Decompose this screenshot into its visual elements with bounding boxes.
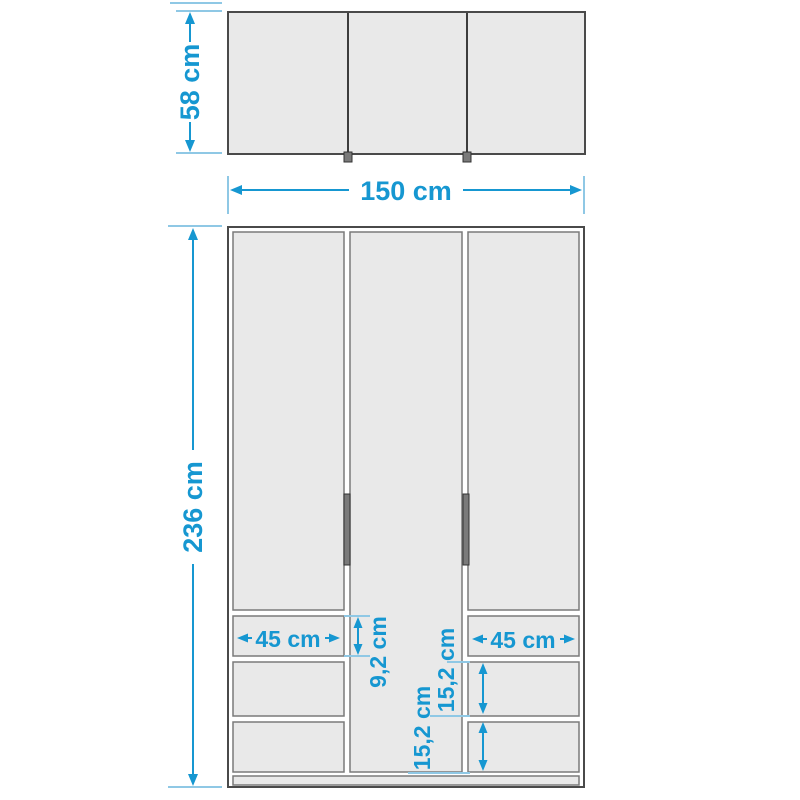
top-view	[228, 12, 585, 162]
width-arrowhead-right-icon	[570, 185, 582, 195]
top-view-handle-right	[463, 152, 471, 162]
top-drawer-height-label: 9,2 cm	[365, 616, 391, 688]
top-view-handle-left	[344, 152, 352, 162]
drawer-left-middle	[233, 662, 344, 716]
front-handle-right	[463, 494, 469, 565]
depth-arrowhead-down-icon	[185, 140, 195, 152]
width-dimension: 150 cm	[228, 176, 584, 214]
bottom-drawer-height-label: 15,2 cm	[409, 686, 435, 770]
height-dimension: 236 cm	[168, 226, 222, 787]
front-view	[228, 227, 584, 787]
width-label: 150 cm	[360, 176, 452, 206]
diagram-canvas: 58 cm 150 cm	[0, 0, 800, 800]
height-arrowhead-down-icon	[188, 774, 198, 786]
wardrobe-dimension-diagram: 58 cm 150 cm	[0, 0, 800, 800]
height-label: 236 cm	[178, 461, 208, 553]
depth-label: 58 cm	[175, 44, 205, 121]
middle-drawer-height-label: 15,2 cm	[433, 628, 459, 712]
drawer-left-bottom	[233, 722, 344, 772]
right-drawer-width-label: 45 cm	[490, 627, 555, 653]
left-drawer-width-label: 45 cm	[255, 626, 320, 652]
front-handle-left	[344, 494, 350, 565]
door-right	[468, 232, 579, 610]
door-left	[233, 232, 344, 610]
base-plinth	[233, 776, 579, 785]
depth-dimension: 58 cm	[170, 3, 222, 153]
top-view-body	[228, 12, 585, 154]
